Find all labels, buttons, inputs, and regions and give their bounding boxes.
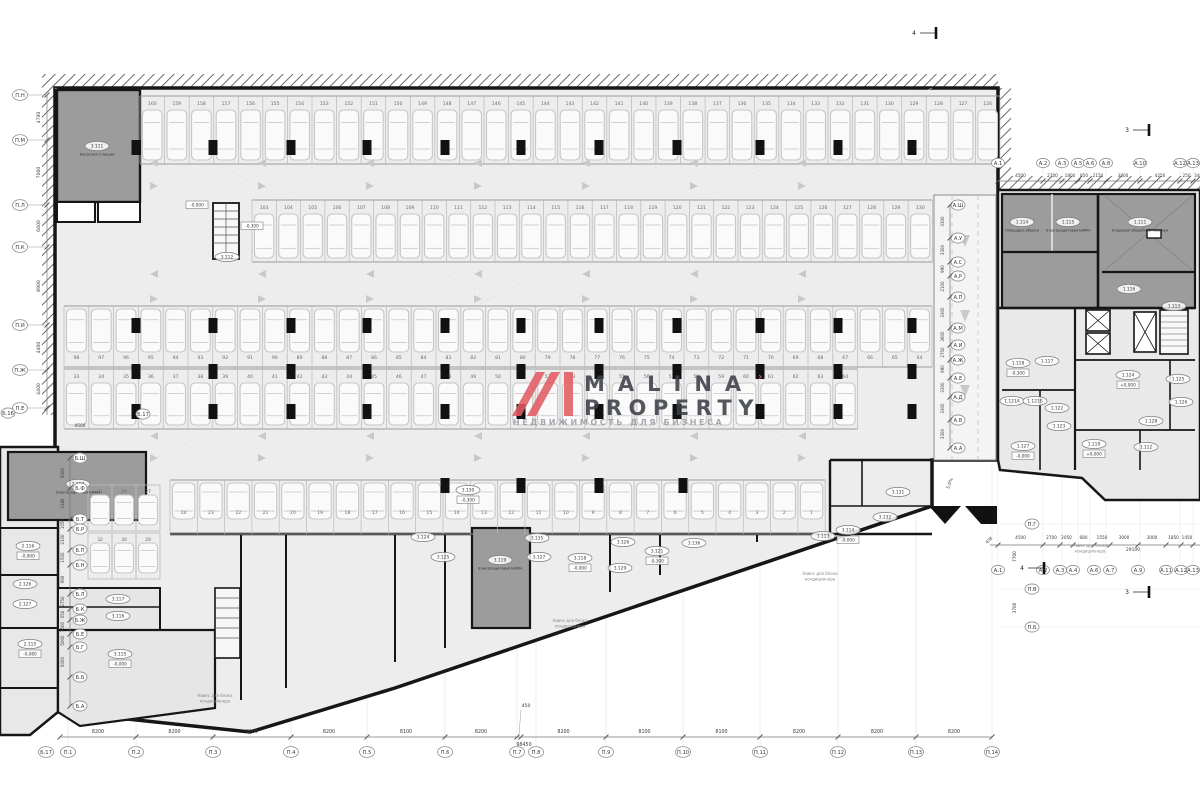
svg-text:83: 83 (445, 355, 451, 361)
svg-text:Б.Ш: Б.Ш (75, 456, 86, 462)
svg-text:3300: 3300 (940, 307, 945, 318)
svg-text:159: 159 (172, 101, 181, 107)
svg-text:107: 107 (357, 205, 366, 211)
svg-text:10: 10 (563, 510, 569, 516)
svg-text:3.112: 3.112 (221, 255, 234, 261)
svg-text:8200: 8200 (948, 729, 960, 735)
svg-text:38: 38 (197, 374, 203, 380)
svg-text:3.125: 3.125 (437, 555, 450, 561)
svg-text:56: 56 (644, 374, 650, 380)
svg-text:2.116: 2.116 (22, 544, 35, 550)
svg-text:47: 47 (421, 374, 427, 380)
svg-text:13: 13 (481, 510, 487, 516)
svg-text:3.121: 3.121 (651, 549, 664, 555)
svg-text:148: 148 (443, 101, 452, 107)
svg-text:4250: 4250 (1155, 173, 1166, 178)
svg-text:81: 81 (495, 355, 501, 361)
svg-text:110: 110 (430, 205, 439, 211)
svg-text:71: 71 (743, 355, 749, 361)
svg-text:3300: 3300 (940, 244, 945, 255)
svg-text:4500: 4500 (74, 423, 85, 429)
svg-text:А.С: А.С (954, 260, 963, 266)
svg-text:92: 92 (222, 355, 228, 361)
svg-text:П.4: П.4 (287, 750, 297, 756)
svg-text:65: 65 (892, 355, 898, 361)
svg-text:3.115: 3.115 (114, 652, 127, 658)
svg-text:8200: 8200 (557, 729, 569, 735)
svg-text:2.126: 2.126 (19, 582, 32, 588)
svg-text:8200: 8200 (92, 729, 104, 735)
svg-text:1.111: 1.111 (1134, 220, 1147, 226)
svg-text:Площадка уборки: Площадка уборки (1005, 229, 1040, 233)
svg-text:126: 126 (819, 205, 828, 211)
svg-text:1.112: 1.112 (1140, 445, 1153, 451)
svg-text:136: 136 (738, 101, 747, 107)
svg-text:А.7: А.7 (1106, 568, 1115, 574)
svg-text:А.У: А.У (954, 236, 963, 242)
svg-text:Б.Г: Б.Г (76, 645, 84, 651)
svg-text:3.126: 3.126 (617, 540, 630, 546)
svg-text:42: 42 (297, 374, 303, 380)
svg-text:84: 84 (421, 355, 427, 361)
svg-text:2100: 2100 (60, 534, 65, 545)
svg-text:4500: 4500 (1015, 173, 1026, 178)
svg-text:А.В: А.В (954, 418, 963, 424)
svg-text:131: 131 (860, 101, 869, 107)
svg-text:1.121Б: 1.121Б (1027, 399, 1043, 405)
svg-text:122: 122 (721, 205, 730, 211)
svg-text:4700: 4700 (36, 112, 42, 124)
svg-text:93: 93 (197, 355, 203, 361)
floor-plan-page: 1601591581571561551541531521511501491481… (0, 0, 1200, 800)
svg-text:160: 160 (148, 101, 157, 107)
svg-text:-0,300: -0,300 (650, 559, 664, 564)
svg-text:76: 76 (619, 355, 625, 361)
svg-text:4: 4 (912, 30, 916, 37)
svg-text:111: 111 (454, 205, 463, 211)
svg-text:Кладовая уборочной техники: Кладовая уборочной техники (1112, 229, 1169, 233)
svg-text:144: 144 (541, 101, 550, 107)
svg-text:3300: 3300 (940, 216, 945, 227)
svg-text:А.1: А.1 (994, 568, 1003, 574)
svg-text:1.126: 1.126 (1175, 400, 1188, 406)
svg-text:151: 151 (369, 101, 378, 107)
svg-text:3180: 3180 (60, 498, 65, 509)
svg-text:4: 4 (728, 510, 731, 516)
svg-text:П.М: П.М (15, 138, 25, 144)
svg-text:15: 15 (426, 510, 432, 516)
svg-text:63: 63 (817, 374, 823, 380)
svg-text:Навес для блока: Навес для блока (1072, 543, 1108, 548)
svg-text:А.8: А.8 (1102, 161, 1111, 167)
svg-text:90: 90 (272, 355, 278, 361)
svg-text:3.117: 3.117 (112, 597, 125, 603)
svg-text:-0,300: -0,300 (461, 498, 475, 503)
svg-text:Б.17: Б.17 (40, 750, 52, 756)
svg-text:5000: 5000 (60, 656, 65, 667)
svg-text:112: 112 (478, 205, 487, 211)
svg-text:2.115: 2.115 (24, 642, 37, 648)
svg-text:35: 35 (123, 374, 129, 380)
svg-text:36: 36 (148, 374, 154, 380)
svg-text:127: 127 (959, 101, 968, 107)
floor-plan-drawing: 1601591581571561551541531521511501491481… (0, 0, 1200, 800)
svg-text:8: 8 (619, 510, 622, 516)
svg-text:Б.17: Б.17 (137, 412, 149, 418)
svg-text:88: 88 (321, 355, 327, 361)
svg-text:+0,000: +0,000 (1120, 383, 1136, 388)
svg-text:67: 67 (842, 355, 848, 361)
svg-text:Б.Б: Б.Б (76, 675, 85, 681)
svg-text:3.132: 3.132 (879, 515, 892, 521)
svg-text:кондиционера: кондиционера (200, 699, 231, 704)
svg-text:117: 117 (600, 205, 609, 211)
svg-text:3: 3 (1125, 589, 1129, 596)
svg-text:146: 146 (492, 101, 501, 107)
svg-text:75: 75 (644, 355, 650, 361)
svg-text:А.Ш: А.Ш (953, 203, 964, 209)
svg-text:2750: 2750 (60, 596, 65, 607)
svg-text:5000: 5000 (60, 635, 65, 646)
svg-text:64: 64 (917, 355, 923, 361)
svg-text:21: 21 (263, 510, 269, 516)
svg-text:4: 4 (1020, 565, 1024, 572)
svg-text:142: 142 (590, 101, 599, 107)
svg-text:-0,900: -0,900 (21, 554, 35, 559)
svg-text:46: 46 (396, 374, 402, 380)
svg-text:91: 91 (247, 355, 253, 361)
svg-text:680: 680 (1080, 535, 1088, 540)
svg-text:98: 98 (73, 355, 79, 361)
svg-text:А.13: А.13 (1187, 161, 1199, 167)
svg-text:105: 105 (308, 205, 317, 211)
svg-text:А.4: А.4 (1069, 568, 1078, 574)
svg-text:П.3: П.3 (209, 750, 218, 756)
svg-text:115: 115 (551, 205, 560, 211)
svg-text:4400: 4400 (36, 342, 42, 354)
svg-text:-0,000: -0,000 (190, 203, 204, 208)
svg-text:134: 134 (787, 101, 796, 107)
svg-text:126: 126 (983, 101, 992, 107)
svg-text:138: 138 (688, 101, 697, 107)
svg-text:78: 78 (569, 355, 575, 361)
svg-text:9: 9 (592, 510, 595, 516)
svg-text:П.1: П.1 (64, 750, 73, 756)
svg-text:114: 114 (527, 205, 536, 211)
svg-text:79: 79 (545, 355, 551, 361)
svg-text:П.7: П.7 (513, 750, 522, 756)
svg-text:154: 154 (295, 101, 304, 107)
svg-text:62: 62 (793, 374, 799, 380)
svg-text:55: 55 (619, 374, 625, 380)
svg-text:5000: 5000 (60, 467, 65, 478)
svg-text:Б.Т: Б.Т (76, 517, 85, 523)
svg-text:3.131: 3.131 (892, 490, 905, 496)
svg-text:89: 89 (297, 355, 303, 361)
svg-text:Б.К: Б.К (76, 607, 85, 613)
svg-text:3800: 3800 (1118, 173, 1129, 178)
svg-text:1050: 1050 (60, 518, 65, 529)
svg-text:3700: 3700 (1012, 602, 1017, 613)
svg-text:7000: 7000 (36, 167, 42, 179)
svg-text:18: 18 (345, 510, 351, 516)
svg-text:72: 72 (718, 355, 724, 361)
svg-text:140: 140 (639, 101, 648, 107)
svg-text:52: 52 (545, 374, 551, 380)
svg-text:5,0%: 5,0% (945, 477, 954, 490)
svg-text:3.136: 3.136 (688, 541, 701, 547)
svg-text:2.127: 2.127 (19, 602, 32, 608)
svg-text:990: 990 (60, 575, 65, 583)
svg-text:1.119: 1.119 (1088, 442, 1101, 448)
svg-text:109: 109 (406, 205, 415, 211)
svg-text:45: 45 (371, 374, 377, 380)
svg-text:68: 68 (817, 355, 823, 361)
svg-text:116: 116 (576, 205, 585, 211)
svg-text:1500: 1500 (60, 552, 65, 563)
svg-text:11: 11 (536, 510, 542, 516)
svg-text:П.6: П.6 (441, 750, 450, 756)
svg-text:66: 66 (867, 355, 873, 361)
svg-text:А.12: А.12 (1174, 161, 1186, 167)
svg-text:39: 39 (222, 374, 228, 380)
svg-text:250: 250 (1183, 173, 1191, 178)
svg-text:1.116: 1.116 (1123, 287, 1136, 293)
svg-text:658: 658 (984, 535, 993, 544)
svg-text:7: 7 (646, 510, 649, 516)
svg-text:8200: 8200 (793, 729, 805, 735)
svg-text:53: 53 (569, 374, 575, 380)
svg-text:70: 70 (768, 355, 774, 361)
svg-text:П.11: П.11 (754, 750, 766, 756)
svg-text:24: 24 (181, 510, 187, 516)
svg-text:1.115: 1.115 (1062, 220, 1075, 226)
svg-text:61: 61 (768, 374, 774, 380)
svg-text:17: 17 (372, 510, 378, 516)
svg-text:2750: 2750 (940, 347, 945, 358)
svg-text:П.Ж: П.Ж (14, 368, 26, 374)
svg-text:135: 135 (762, 101, 771, 107)
svg-text:Навес для блока: Навес для блока (552, 618, 588, 623)
svg-text:А.10: А.10 (1134, 161, 1146, 167)
svg-text:-0,000: -0,000 (113, 662, 127, 667)
svg-text:19: 19 (317, 510, 323, 516)
svg-text:А.6: А.6 (1090, 568, 1099, 574)
svg-text:А.М: А.М (953, 326, 963, 332)
svg-text:1.122: 1.122 (1051, 406, 1064, 412)
svg-text:Б.Ж: Б.Ж (75, 618, 86, 624)
svg-text:64: 64 (842, 374, 848, 380)
svg-text:58: 58 (693, 374, 699, 380)
svg-text:П.Л: П.Л (15, 203, 25, 209)
svg-text:кондиционера: кондиционера (555, 624, 586, 629)
svg-text:1.127: 1.127 (1017, 444, 1030, 450)
svg-text:Электрощитовая БКФН: Электрощитовая БКФН (1046, 229, 1091, 233)
svg-text:121: 121 (697, 205, 706, 211)
svg-text:37: 37 (173, 374, 179, 380)
svg-text:106: 106 (333, 205, 342, 211)
svg-text:А.А: А.А (954, 446, 963, 452)
svg-text:2100: 2100 (940, 281, 945, 292)
svg-text:А.12: А.12 (1175, 568, 1187, 574)
svg-text:77: 77 (594, 355, 600, 361)
svg-text:П.13: П.13 (910, 750, 922, 756)
svg-text:8900: 8900 (36, 280, 42, 292)
svg-text:4500: 4500 (1015, 535, 1026, 540)
svg-text:3600: 3600 (940, 331, 945, 342)
svg-text:44: 44 (346, 374, 352, 380)
svg-text:152: 152 (344, 101, 353, 107)
svg-text:кондиционера: кондиционера (805, 577, 836, 582)
svg-text:990: 990 (940, 265, 945, 273)
svg-text:108: 108 (381, 205, 390, 211)
svg-text:129: 129 (892, 205, 901, 211)
svg-text:130: 130 (916, 205, 925, 211)
svg-text:1.114: 1.114 (1016, 220, 1029, 226)
svg-text:141: 141 (615, 101, 624, 107)
svg-text:П.В: П.В (1027, 587, 1037, 593)
svg-text:П.Г: П.Г (1028, 522, 1037, 528)
svg-text:6600: 6600 (36, 220, 42, 232)
svg-text:А.П: А.П (953, 295, 962, 301)
svg-text:3300: 3300 (940, 403, 945, 414)
svg-text:3.113: 3.113 (817, 534, 830, 540)
svg-text:1850: 1850 (1168, 535, 1179, 540)
svg-text:153: 153 (320, 101, 329, 107)
svg-text:128: 128 (867, 205, 876, 211)
svg-text:1.125: 1.125 (1172, 377, 1185, 383)
svg-text:97: 97 (98, 355, 104, 361)
svg-text:8200: 8200 (475, 729, 487, 735)
svg-text:29100: 29100 (1126, 547, 1140, 553)
svg-text:103: 103 (260, 205, 269, 211)
svg-text:69: 69 (793, 355, 799, 361)
svg-text:1.124: 1.124 (1122, 373, 1135, 379)
svg-text:124: 124 (770, 205, 779, 211)
svg-text:22: 22 (235, 510, 241, 516)
svg-text:125: 125 (794, 205, 803, 211)
svg-text:3.127: 3.127 (533, 555, 546, 561)
svg-text:85: 85 (396, 355, 402, 361)
svg-text:33: 33 (73, 374, 79, 380)
svg-text:А.6: А.6 (1086, 161, 1095, 167)
svg-text:137: 137 (713, 101, 722, 107)
svg-text:3.129: 3.129 (614, 566, 627, 572)
svg-text:А.Р: А.Р (954, 274, 962, 280)
svg-text:7700: 7700 (1012, 551, 1017, 562)
svg-text:П.К: П.К (15, 245, 25, 251)
svg-text:1550: 1550 (1097, 535, 1108, 540)
svg-text:1: 1 (810, 510, 813, 516)
svg-text:14: 14 (454, 510, 460, 516)
svg-text:3.118: 3.118 (574, 556, 587, 562)
svg-text:2700: 2700 (1047, 173, 1058, 178)
svg-text:Б.П: Б.П (75, 548, 84, 554)
svg-text:Б.Л: Б.Л (75, 592, 84, 598)
svg-text:-0,000: -0,000 (841, 538, 855, 543)
svg-text:41: 41 (272, 374, 278, 380)
svg-text:80: 80 (520, 355, 526, 361)
svg-text:-0,080: -0,080 (23, 652, 37, 657)
svg-text:Б.Р: Б.Р (76, 527, 84, 533)
svg-text:123: 123 (746, 205, 755, 211)
svg-text:43: 43 (321, 374, 327, 380)
svg-text:8100: 8100 (246, 729, 258, 735)
svg-text:40: 40 (247, 374, 253, 380)
svg-text:-0,000: -0,000 (1016, 454, 1030, 459)
svg-text:А.Ж: А.Ж (953, 358, 964, 364)
svg-text:П.Н: П.Н (15, 93, 25, 99)
svg-text:12: 12 (508, 510, 514, 516)
svg-text:6: 6 (674, 510, 677, 516)
svg-text:-0,300: -0,300 (1011, 371, 1025, 376)
svg-text:Насосная станция: Насосная станция (80, 153, 114, 157)
svg-text:+0,000: +0,000 (1086, 452, 1102, 457)
svg-text:104: 104 (284, 205, 293, 211)
svg-text:16: 16 (399, 510, 405, 516)
svg-text:156: 156 (246, 101, 255, 107)
svg-text:150: 150 (394, 101, 403, 107)
svg-text:49: 49 (470, 374, 476, 380)
svg-text:120: 120 (673, 205, 682, 211)
svg-text:П.12: П.12 (832, 750, 844, 756)
svg-text:3.111: 3.111 (91, 144, 104, 150)
svg-text:3.135: 3.135 (531, 536, 544, 542)
svg-text:145: 145 (516, 101, 525, 107)
svg-text:127: 127 (843, 205, 852, 211)
svg-text:А.И: А.И (953, 343, 962, 349)
svg-text:Электрощитовая БКФН: Электрощитовая БКФН (478, 567, 523, 571)
svg-text:1.113: 1.113 (1168, 304, 1181, 310)
svg-text:96: 96 (123, 355, 129, 361)
svg-text:П.10: П.10 (677, 750, 689, 756)
svg-text:3.116: 3.116 (112, 614, 125, 620)
svg-text:А.Е: А.Е (954, 376, 962, 382)
svg-text:А.1: А.1 (994, 161, 1003, 167)
svg-text:158: 158 (197, 101, 206, 107)
svg-text:23: 23 (208, 510, 214, 516)
svg-text:-0,300: -0,300 (245, 224, 259, 229)
svg-text:8100: 8100 (715, 729, 727, 735)
svg-text:30: 30 (121, 537, 127, 543)
svg-text:П.5: П.5 (363, 750, 372, 756)
svg-text:1450: 1450 (1182, 535, 1193, 540)
svg-text:3300: 3300 (940, 428, 945, 439)
svg-text:990: 990 (940, 365, 945, 373)
svg-text:3: 3 (755, 510, 758, 516)
svg-text:1800: 1800 (1065, 173, 1076, 178)
svg-text:143: 143 (566, 101, 575, 107)
svg-text:139: 139 (664, 101, 673, 107)
svg-text:1.128: 1.128 (1145, 419, 1158, 425)
svg-text:73: 73 (693, 355, 699, 361)
svg-text:А.3: А.3 (1058, 161, 1067, 167)
svg-text:3: 3 (1125, 127, 1129, 134)
svg-text:8100: 8100 (400, 729, 412, 735)
svg-text:П.И: П.И (15, 323, 25, 329)
svg-text:3000: 3000 (1119, 535, 1130, 540)
svg-text:1.117: 1.117 (1041, 359, 1054, 365)
svg-text:П.Б: П.Б (1027, 625, 1037, 631)
svg-text:-0,000: -0,000 (573, 566, 587, 571)
svg-text:Б.А: Б.А (76, 704, 85, 710)
svg-text:119: 119 (649, 205, 658, 211)
svg-text:94: 94 (173, 355, 179, 361)
svg-text:П.8: П.8 (532, 750, 541, 756)
svg-text:149: 149 (418, 101, 427, 107)
svg-text:550: 550 (60, 610, 65, 618)
svg-text:1500: 1500 (60, 621, 65, 632)
